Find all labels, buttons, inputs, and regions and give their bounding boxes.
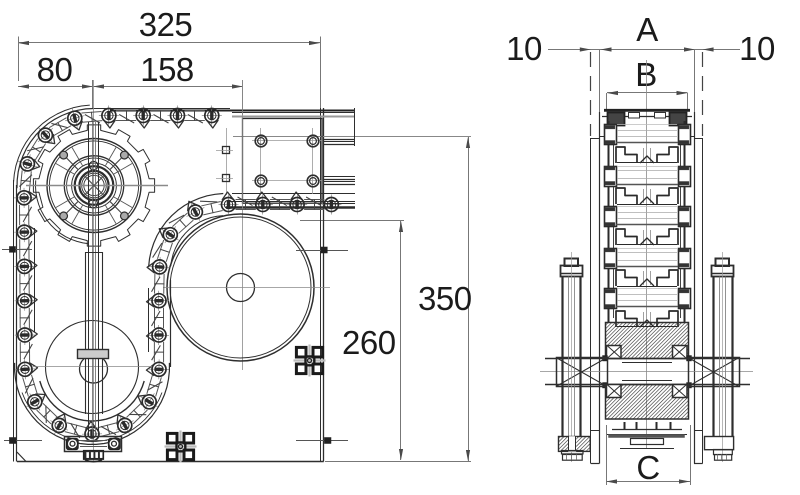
svg-text:B: B <box>635 56 657 93</box>
svg-text:158: 158 <box>140 51 194 88</box>
svg-text:10: 10 <box>739 30 775 67</box>
svg-text:A: A <box>636 11 658 48</box>
svg-text:260: 260 <box>342 324 396 361</box>
svg-text:C: C <box>636 449 659 486</box>
svg-text:325: 325 <box>139 6 193 43</box>
svg-text:80: 80 <box>37 51 73 88</box>
svg-text:10: 10 <box>506 30 542 67</box>
svg-text:350: 350 <box>418 280 472 317</box>
